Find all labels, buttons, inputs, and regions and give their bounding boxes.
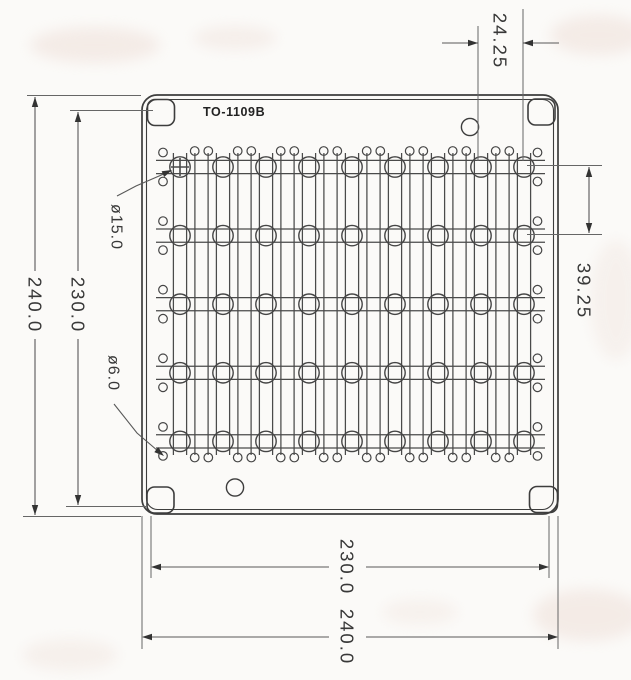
- callout-small-hole: ø6.0: [104, 355, 164, 456]
- dim-label-inner-height: 230.0: [68, 277, 89, 333]
- mounting-hole-top-right: [461, 118, 478, 135]
- callout-large-hole: ø15.0: [107, 170, 172, 250]
- mounting-hole-bottom-left: [226, 479, 243, 496]
- technical-drawing: TO-1109B 240.0 230.0 24.25: [0, 0, 631, 680]
- dim-label-row-pitch: 39.25: [574, 263, 595, 319]
- noise-blob: [22, 639, 118, 671]
- noise-blob: [550, 15, 631, 55]
- arrowhead-down: [32, 505, 38, 515]
- small-hole: [533, 246, 542, 255]
- small-hole: [533, 148, 542, 157]
- noise-blob: [30, 27, 160, 63]
- drawing-page: TO-1109B 240.0 230.0 24.25: [0, 0, 631, 680]
- small-hole: [533, 354, 542, 363]
- small-hole: [159, 217, 168, 226]
- dim-column-pitch: 24.25: [442, 9, 559, 161]
- arrowhead-up: [586, 167, 592, 177]
- small-hole: [533, 423, 542, 432]
- arrowhead-up: [75, 112, 81, 122]
- dim-label-overall-width: 240.0: [337, 609, 358, 665]
- hole-grid: [156, 147, 545, 462]
- noise-blob: [193, 26, 277, 50]
- arrowhead-up: [32, 97, 38, 107]
- arrowhead-left: [523, 40, 533, 46]
- small-hole: [533, 285, 542, 294]
- noise-blob: [533, 589, 631, 641]
- arrowhead-down: [586, 223, 592, 233]
- part-label: TO-1109B: [203, 105, 265, 119]
- small-hole: [159, 423, 168, 432]
- small-hole: [159, 314, 168, 323]
- dim-label-overall-height: 240.0: [25, 277, 46, 333]
- small-hole: [533, 217, 542, 226]
- dim-inner-width: 230.0: [151, 516, 549, 595]
- label-large-hole-diameter: ø15.0: [107, 204, 124, 250]
- leader-line: [114, 404, 158, 451]
- noise-blob: [590, 240, 631, 360]
- small-hole: [159, 354, 168, 363]
- arrowhead-right: [539, 564, 549, 570]
- small-hole: [533, 177, 542, 186]
- small-hole: [159, 285, 168, 294]
- small-hole: [159, 177, 168, 186]
- scan-noise: [22, 15, 631, 671]
- arrowhead-down: [75, 495, 81, 505]
- corner-cutout-top-left: [148, 100, 175, 126]
- small-hole: [533, 452, 542, 461]
- arrowhead-right: [468, 40, 478, 46]
- small-hole: [159, 148, 168, 157]
- dim-label-inner-width: 230.0: [337, 539, 358, 595]
- small-hole: [159, 383, 168, 392]
- small-hole: [533, 383, 542, 392]
- dim-inner-height: 230.0: [66, 111, 153, 507]
- label-small-hole-diameter: ø6.0: [104, 355, 121, 391]
- noise-blob: [382, 599, 458, 625]
- small-hole: [159, 246, 168, 255]
- dim-label-column-pitch: 24.25: [490, 13, 511, 69]
- small-hole: [533, 314, 542, 323]
- arrowhead-left: [142, 634, 152, 640]
- arrowhead-left: [151, 564, 161, 570]
